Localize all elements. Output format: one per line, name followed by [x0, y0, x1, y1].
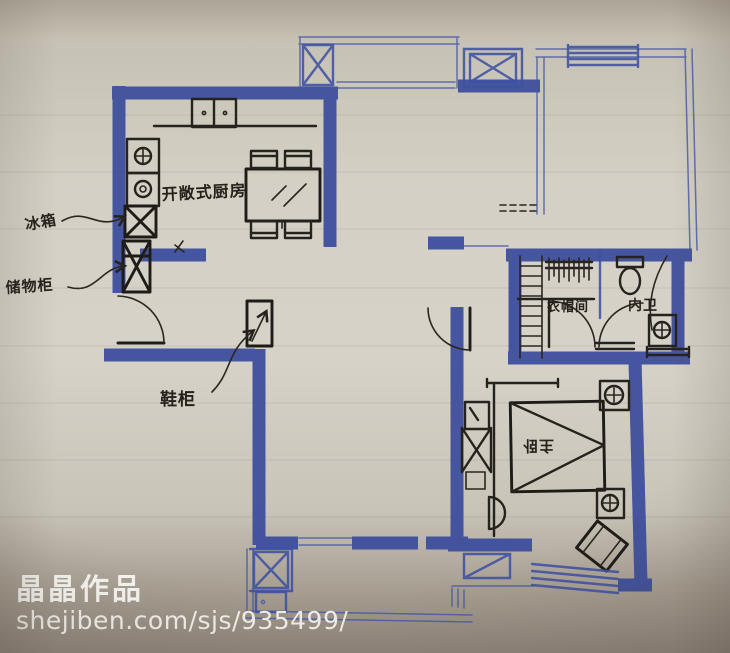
label-shoe-cabinet: 鞋柜	[160, 389, 196, 410]
dining-set	[246, 151, 320, 238]
floorplan-drawing: 开敞式厨房 冰箱 储物柜 鞋柜 衣帽间 内卫 主卧	[0, 0, 730, 653]
label-walk-in-closet: 衣帽间	[547, 299, 589, 315]
label-kitchen: 开敞式厨房	[161, 181, 247, 204]
bay-window	[299, 37, 459, 90]
walls	[104, 86, 692, 585]
label-fridge: 冰箱	[24, 211, 59, 234]
entry-door	[118, 296, 164, 343]
corridor-door	[428, 308, 470, 350]
watermark-url: shejiben.com/sjs/935499/	[16, 608, 348, 634]
watermark: 晶晶作品 shejiben.com/sjs/935499/	[16, 574, 348, 635]
label-inner-bathroom: 内卫	[628, 297, 658, 314]
annotation-arrows	[62, 216, 253, 392]
label-storage-cabinet: 储物柜	[5, 276, 54, 297]
floorplan-photo: 开敞式厨房 冰箱 储物柜 鞋柜 衣帽间 内卫 主卧 晶晶作品 shejiben.…	[0, 0, 730, 653]
secondary-room	[464, 45, 697, 250]
watermark-title: 晶晶作品	[16, 574, 348, 604]
paper-ruling	[0, 115, 730, 517]
shoe-cabinet	[247, 301, 272, 346]
label-master-bedroom: 主卧	[522, 437, 554, 455]
flue-box	[464, 49, 522, 87]
